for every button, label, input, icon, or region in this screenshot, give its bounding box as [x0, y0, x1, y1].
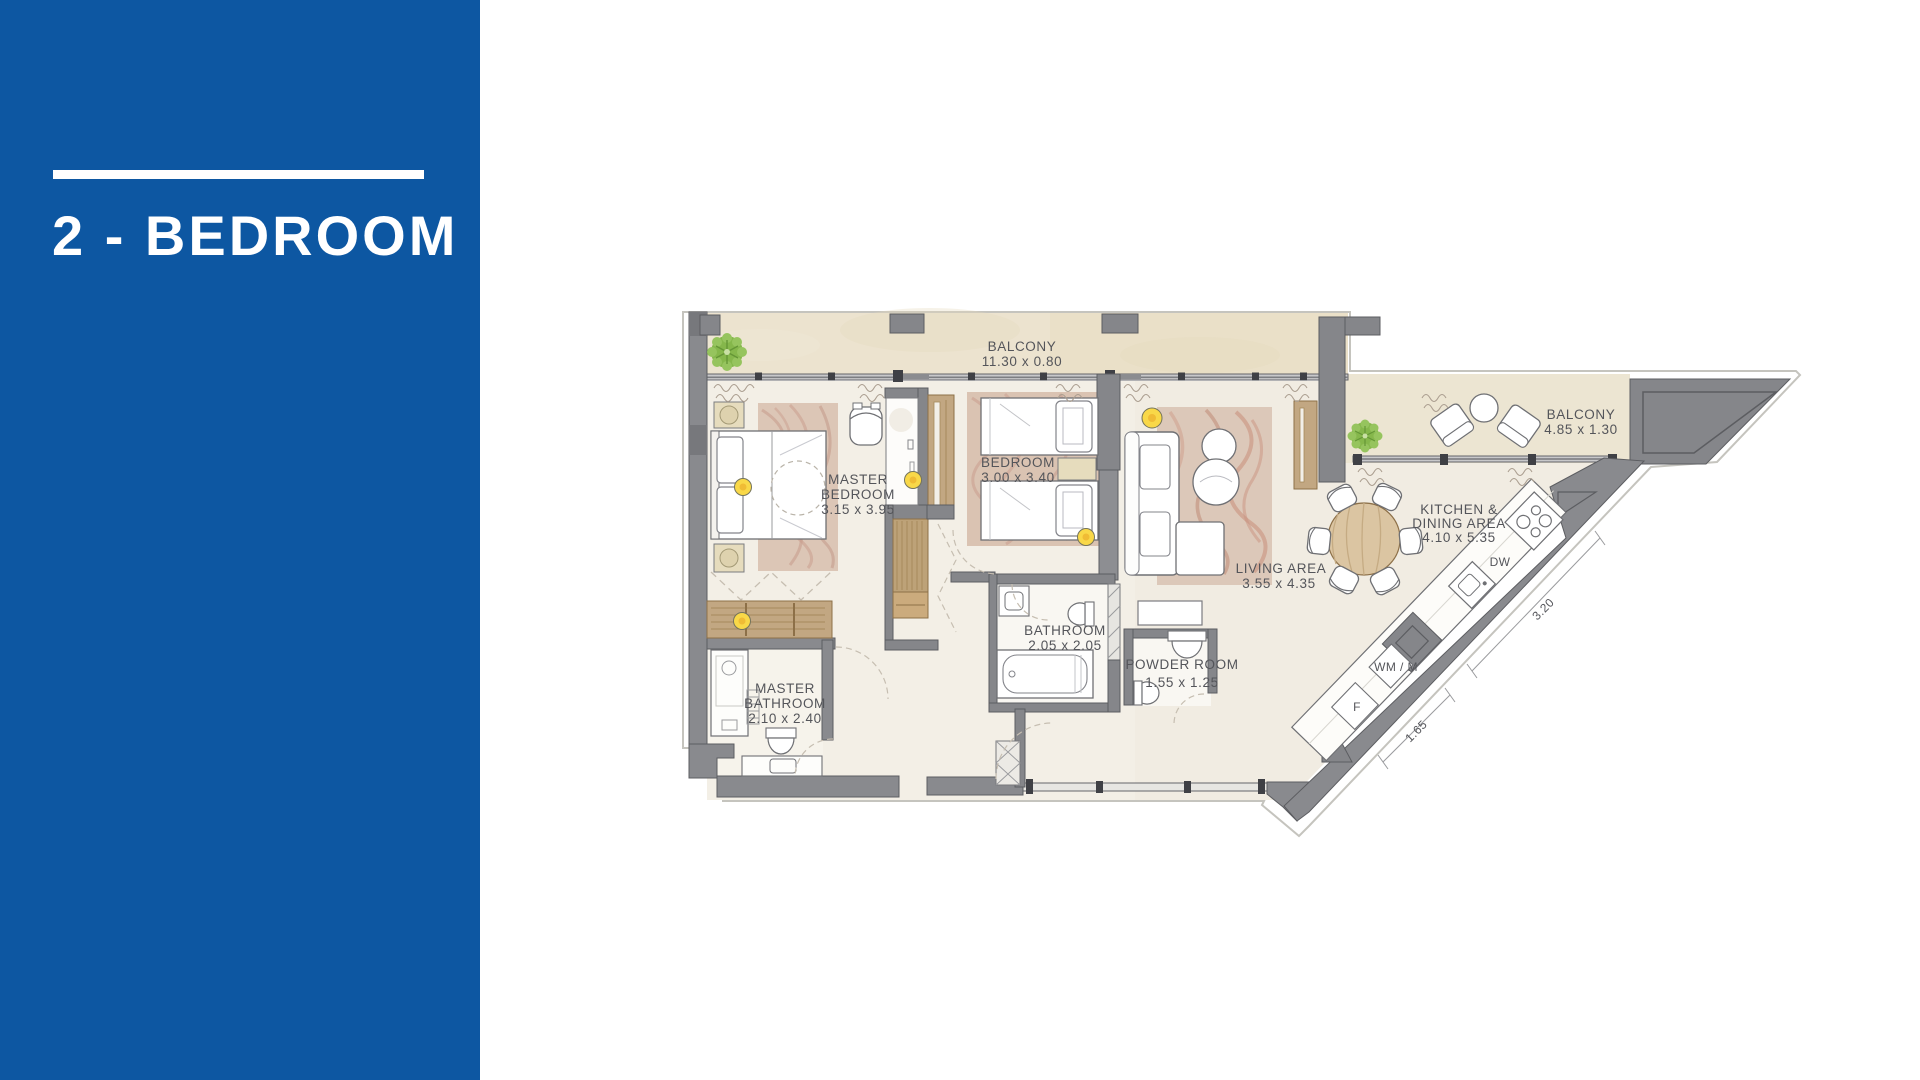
svg-text:BATHROOM: BATHROOM [744, 696, 826, 711]
svg-text:4.10 x 5.35: 4.10 x 5.35 [1422, 530, 1495, 545]
svg-text:POWDER ROOM: POWDER ROOM [1125, 657, 1238, 672]
svg-text:WM / M: WM / M [1374, 660, 1418, 674]
svg-text:3.00 x 3.40: 3.00 x 3.40 [981, 470, 1054, 485]
svg-text:1.65: 1.65 [1402, 717, 1430, 745]
svg-text:DINING AREA: DINING AREA [1412, 516, 1506, 531]
svg-text:BATHROOM: BATHROOM [1024, 623, 1106, 638]
svg-text:KITCHEN &: KITCHEN & [1420, 502, 1497, 517]
svg-text:BEDROOM: BEDROOM [981, 455, 1055, 470]
svg-text:4.85 x 1.30: 4.85 x 1.30 [1544, 422, 1617, 437]
svg-text:11.30 x 0.80: 11.30 x 0.80 [982, 354, 1063, 369]
svg-text:3.55 x 4.35: 3.55 x 4.35 [1242, 576, 1315, 591]
svg-text:3.20: 3.20 [1529, 595, 1557, 623]
svg-text:BALCONY: BALCONY [988, 339, 1057, 354]
svg-text:2.10 x 2.40: 2.10 x 2.40 [748, 711, 821, 726]
svg-text:1.55 x 1.25: 1.55 x 1.25 [1145, 675, 1218, 690]
svg-text:DW: DW [1490, 555, 1511, 569]
svg-text:2.05 x 2.05: 2.05 x 2.05 [1028, 638, 1101, 653]
svg-text:F: F [1353, 700, 1361, 714]
svg-text:MASTER: MASTER [828, 472, 888, 487]
svg-text:LIVING AREA: LIVING AREA [1236, 561, 1327, 576]
svg-text:MASTER: MASTER [755, 681, 815, 696]
svg-text:3.15 x 3.95: 3.15 x 3.95 [821, 502, 894, 517]
svg-text:BALCONY: BALCONY [1547, 407, 1616, 422]
svg-text:BEDROOM: BEDROOM [821, 487, 895, 502]
